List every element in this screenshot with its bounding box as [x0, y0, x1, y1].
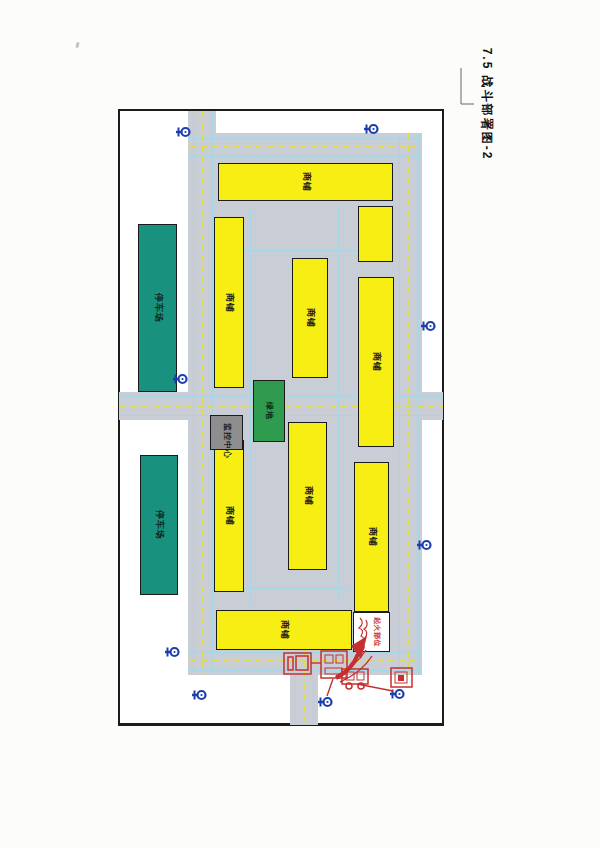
fire-hydrant-icon: [175, 124, 191, 136]
road-guide-line: [338, 205, 339, 600]
block-label: 绿地: [265, 402, 273, 420]
road-guide-line: [188, 138, 422, 139]
fire-origin-label: 起火部位: [372, 617, 382, 647]
fire-hydrant-icon: [317, 694, 333, 706]
road-guide-line: [193, 111, 194, 675]
fire-hydrant-icon: [389, 686, 405, 698]
scanned-page: 7.5 战斗部署图-2 停车场停车场商铺商铺商铺商铺商铺商铺商铺商铺绿地监控中心: [0, 0, 600, 848]
road-guide-line: [250, 210, 251, 606]
fire-hydrant-icon: [164, 644, 180, 656]
fire-hydrant-icon: [191, 687, 207, 699]
road-guide-line: [295, 675, 296, 724]
shop-building: [358, 206, 393, 262]
fire-hydrant-icon: [172, 371, 188, 383]
block-label: 商铺: [303, 486, 312, 506]
fire-hydrant-icon: [416, 537, 432, 549]
road-center-line: [201, 112, 203, 675]
road-guide-line: [188, 156, 422, 157]
block-label: 停车场: [155, 510, 164, 540]
block-label: 商铺: [225, 506, 234, 526]
road-guide-line: [313, 675, 314, 724]
block-label: 监控中心: [223, 423, 231, 459]
block-label: 停车场: [153, 293, 162, 323]
block-label: 商铺: [301, 172, 310, 192]
road-center-line: [190, 146, 422, 148]
block-label: 商铺: [372, 352, 381, 372]
block-label: 商铺: [280, 620, 289, 640]
fire-hydrant-icon: [363, 121, 379, 133]
page-title: 7.5 战斗部署图-2: [478, 48, 495, 161]
block-label: 商铺: [306, 308, 315, 328]
road-center-line: [190, 660, 422, 662]
road-guide-line: [188, 652, 422, 653]
road-center-line: [303, 650, 305, 724]
scan-artifact: [75, 42, 79, 49]
block-label: 商铺: [225, 293, 234, 313]
road-guide-line: [188, 670, 422, 671]
fire-hydrant-icon: [420, 318, 436, 330]
road-guide-line: [212, 111, 213, 675]
block-label: 商铺: [367, 527, 376, 547]
